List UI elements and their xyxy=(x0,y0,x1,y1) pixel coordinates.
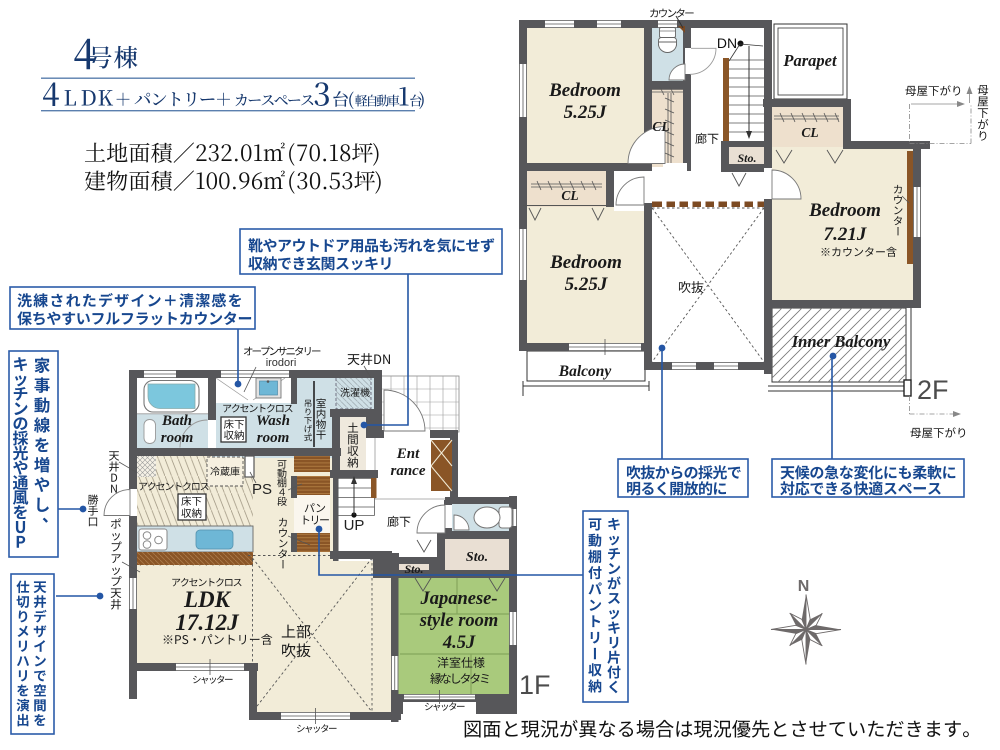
svg-text:style room: style room xyxy=(419,611,499,631)
svg-text:Inner Balcony: Inner Balcony xyxy=(791,332,891,351)
svg-text:17.12J: 17.12J xyxy=(175,610,240,635)
svg-text:1F: 1F xyxy=(519,670,551,700)
svg-text:Ent: Ent xyxy=(396,446,420,462)
svg-text:Wash: Wash xyxy=(256,413,290,429)
svg-text:PS: PS xyxy=(252,481,272,498)
svg-text:CL: CL xyxy=(561,188,578,203)
svg-text:Bath: Bath xyxy=(161,413,192,429)
svg-text:Japanese-: Japanese- xyxy=(419,589,497,609)
svg-text:N: N xyxy=(798,578,810,595)
svg-text:4.5J: 4.5J xyxy=(442,633,476,653)
svg-text:Balcony: Balcony xyxy=(558,363,612,380)
svg-text:LDK: LDK xyxy=(183,587,232,612)
svg-text:5.25J: 5.25J xyxy=(564,102,607,123)
svg-text:Sto.: Sto. xyxy=(404,562,423,576)
svg-text:2F: 2F xyxy=(917,375,949,405)
svg-text:irodori: irodori xyxy=(266,357,297,369)
svg-text:room: room xyxy=(161,430,194,446)
svg-text:Bedroom: Bedroom xyxy=(549,252,622,273)
svg-text:Bedroom: Bedroom xyxy=(548,80,621,101)
svg-text:Sto.: Sto. xyxy=(737,151,756,165)
svg-text:CL: CL xyxy=(652,119,669,134)
svg-text:UP: UP xyxy=(344,517,365,534)
svg-text:Sto.: Sto. xyxy=(466,550,488,565)
svg-text:room: room xyxy=(257,430,290,446)
svg-text:5.25J: 5.25J xyxy=(565,274,608,295)
svg-text:7.21J: 7.21J xyxy=(824,224,867,245)
svg-text:Parapet: Parapet xyxy=(782,51,837,70)
svg-text:Bedroom: Bedroom xyxy=(808,200,881,221)
svg-text:rance: rance xyxy=(391,463,426,479)
svg-text:CL: CL xyxy=(801,125,818,140)
svg-text:DN: DN xyxy=(717,35,737,51)
